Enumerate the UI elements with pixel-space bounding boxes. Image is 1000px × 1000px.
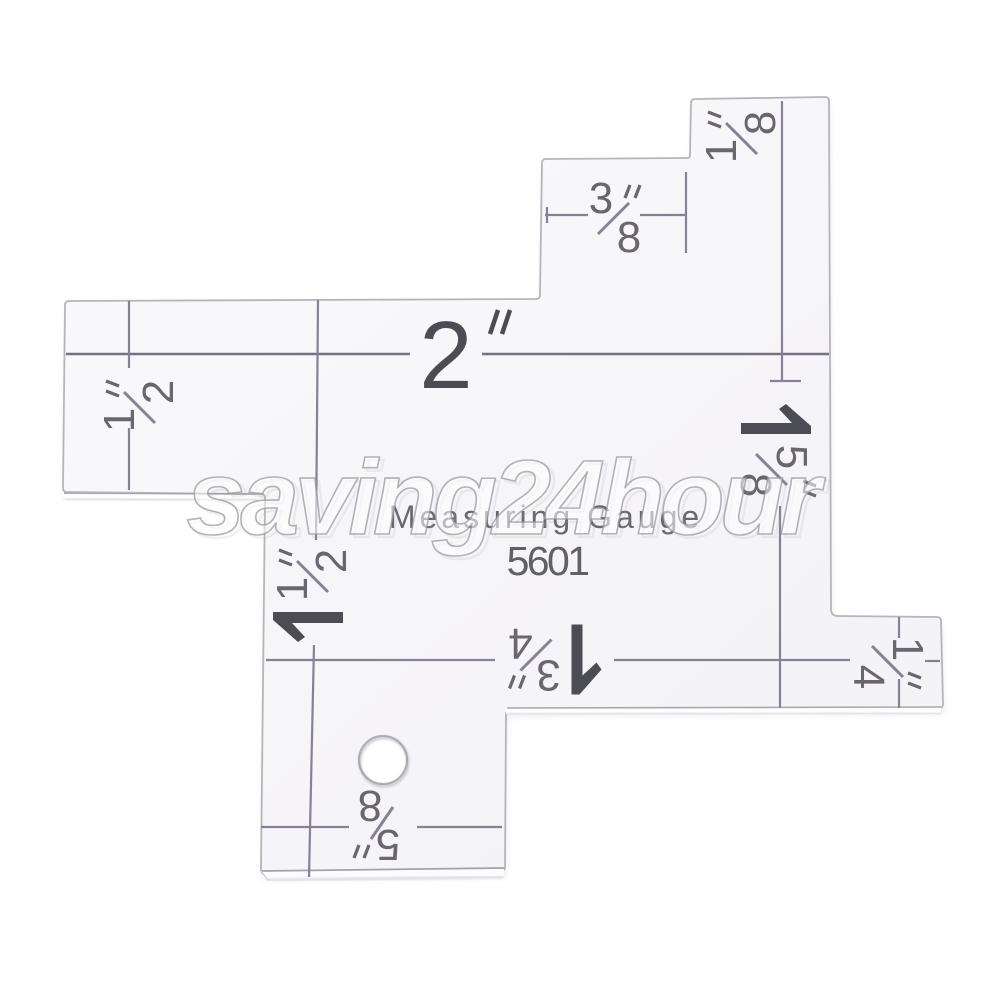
svg-text:4: 4 xyxy=(844,665,893,689)
svg-text:8: 8 xyxy=(617,213,641,262)
svg-text:3: 3 xyxy=(589,174,613,223)
svg-text:8: 8 xyxy=(358,781,382,830)
svg-text:8: 8 xyxy=(736,111,785,135)
svg-text:1: 1 xyxy=(697,139,746,163)
svg-text:3: 3 xyxy=(536,651,560,700)
svg-text:1: 1 xyxy=(95,408,144,432)
svg-text:saving24hour: saving24hour xyxy=(186,439,826,557)
svg-text:1: 1 xyxy=(268,577,317,601)
svg-text:4: 4 xyxy=(508,619,532,668)
svg-text:2: 2 xyxy=(419,302,472,409)
svg-text:2: 2 xyxy=(134,380,183,404)
svg-text:1: 1 xyxy=(883,637,932,661)
